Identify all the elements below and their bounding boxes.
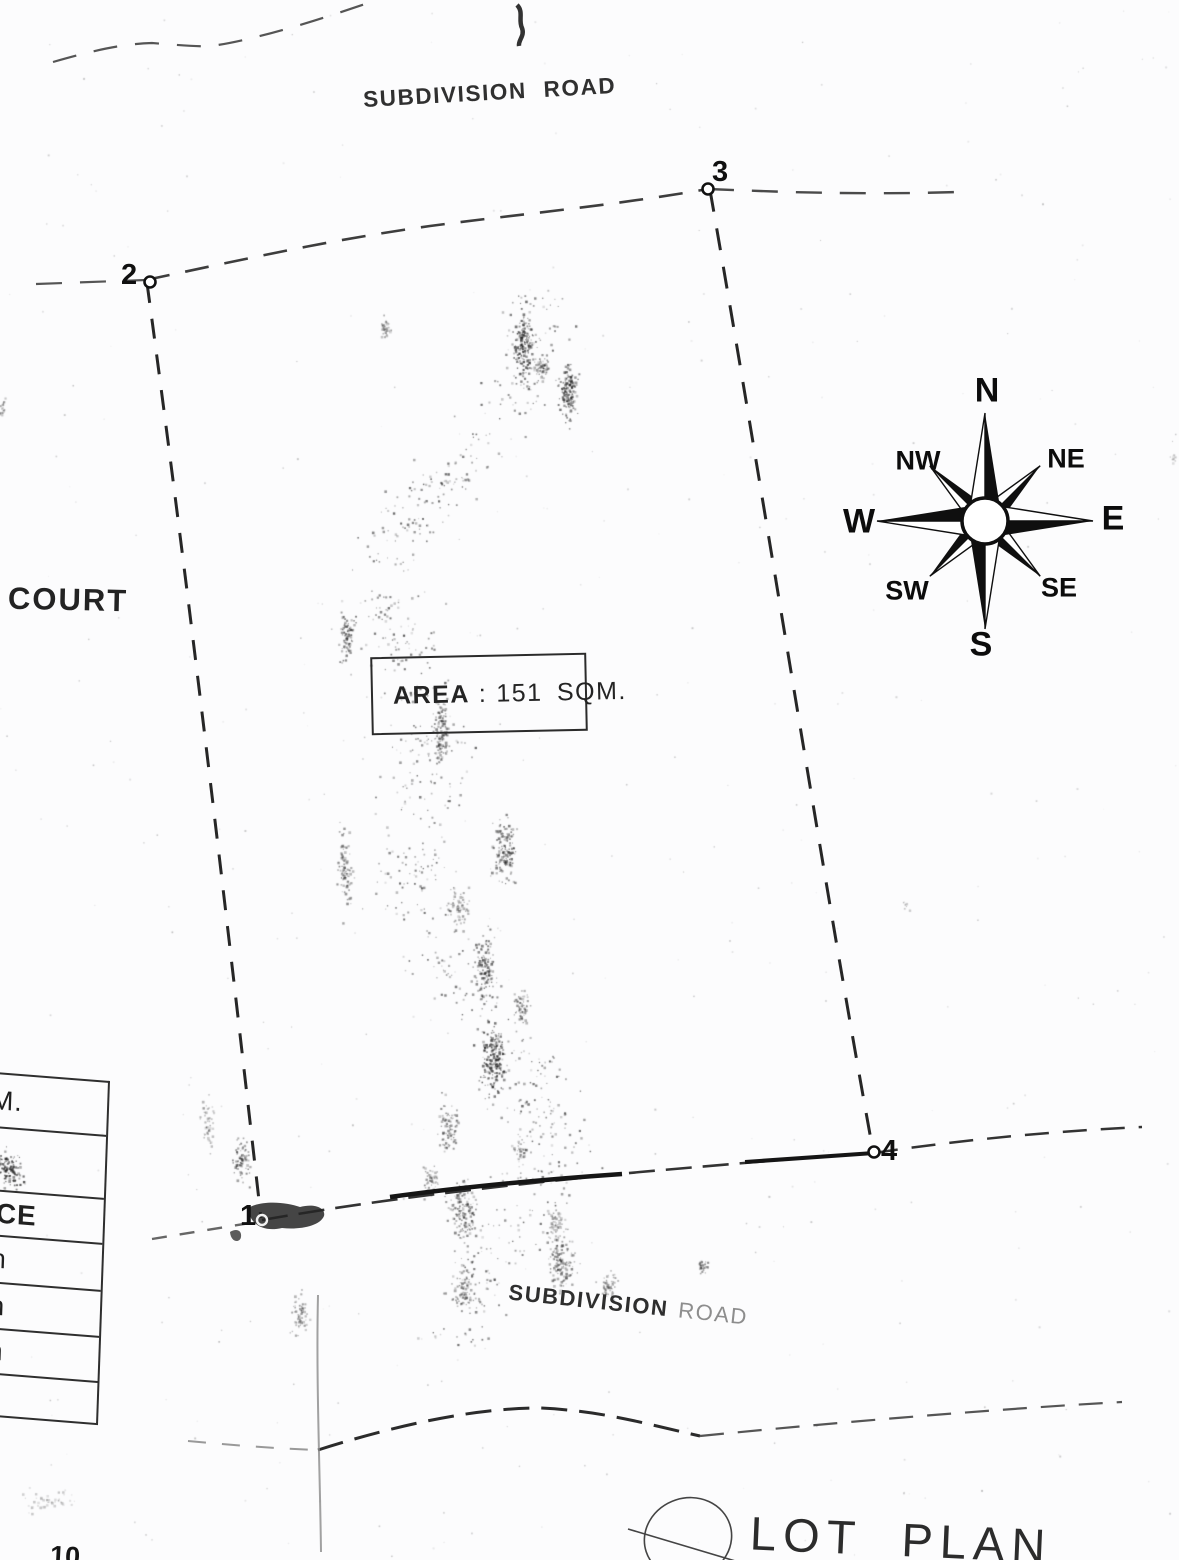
area-value: 151 SQM. bbox=[496, 676, 627, 708]
title-ellipse-ornament bbox=[634, 1486, 742, 1560]
compass-east-label: E bbox=[1102, 500, 1125, 539]
bottom-road-near-edge-mid bbox=[262, 1153, 874, 1220]
lot-plan-scan-page: SUBDIVISION ROAD COURT AREA : 151 SQM. 1… bbox=[0, 0, 1179, 1560]
bottom-road-near-edge-right bbox=[874, 1127, 1142, 1153]
table-row bbox=[0, 1123, 106, 1200]
area-separator: : bbox=[479, 679, 488, 708]
bottom-road-near-edge-solid-2 bbox=[745, 1153, 874, 1162]
compass-north-label: N bbox=[975, 372, 1000, 411]
corner-4-marker bbox=[869, 1147, 880, 1158]
table-cell: 18 m bbox=[0, 1285, 6, 1322]
area-callout-box: AREA : 151 SQM. bbox=[370, 653, 588, 736]
corner-2-label: 2 bbox=[121, 259, 137, 292]
table-row: SQ.M. bbox=[0, 1069, 108, 1137]
corner-4-label: 4 bbox=[881, 1135, 897, 1168]
scan-crease-line bbox=[317, 1295, 321, 1552]
table-cell: 16 m bbox=[0, 1331, 4, 1368]
bottom-road-far-edge-mid bbox=[318, 1408, 700, 1450]
boundary-line-2-1 bbox=[147, 283, 261, 1218]
corner-2-marker bbox=[145, 277, 156, 288]
plan-line-drawing bbox=[0, 0, 1179, 1560]
ink-blot-top bbox=[517, 5, 523, 46]
compass-southeast-label: SE bbox=[1041, 573, 1077, 604]
adjacent-court-label: COURT bbox=[8, 581, 129, 620]
table-cell: 00 m bbox=[0, 1374, 3, 1411]
compass-southwest-label: SW bbox=[885, 576, 929, 607]
compass-west-label: W bbox=[843, 503, 875, 542]
corner-1-label: 1 bbox=[240, 1200, 256, 1233]
bottom-road-near-edge-solid-1 bbox=[390, 1174, 622, 1197]
bottom-road-far-edge-right bbox=[700, 1402, 1122, 1436]
bottom-road-far-edge-left bbox=[188, 1441, 318, 1450]
table-cell: SQ.M. bbox=[0, 1080, 23, 1117]
compass-south-label: S bbox=[970, 626, 993, 665]
compass-northwest-label: NW bbox=[896, 446, 941, 477]
area-label: AREA bbox=[393, 680, 470, 711]
table-cell: 98 m bbox=[0, 1239, 7, 1276]
table-cell: TANCE bbox=[0, 1192, 37, 1232]
top-road-far-edge-line bbox=[53, 0, 382, 62]
corner-3-label: 3 bbox=[712, 156, 728, 189]
top-road-near-edge-mid bbox=[146, 189, 708, 280]
top-road-near-edge-right bbox=[708, 189, 958, 193]
boundary-line-3-4 bbox=[710, 190, 873, 1151]
compass-hub bbox=[962, 498, 1008, 544]
compass-northeast-label: NE bbox=[1047, 444, 1085, 475]
technical-description-table-fragment: SQ.M. TANCE 98 m 18 m 16 m 00 m bbox=[0, 1067, 110, 1425]
bottom-left-number-fragment: 10 bbox=[49, 1540, 81, 1560]
